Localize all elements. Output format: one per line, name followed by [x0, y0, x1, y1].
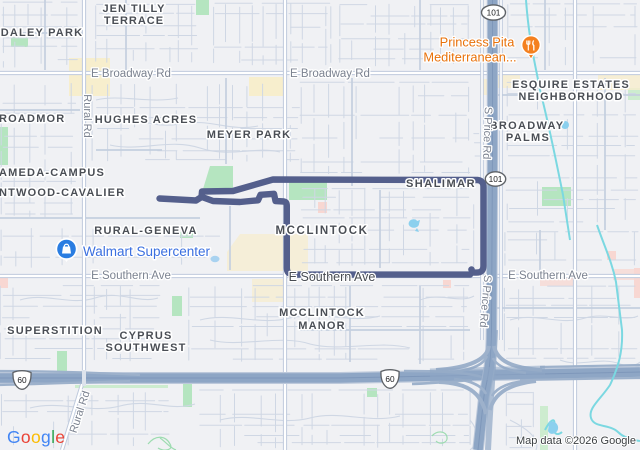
svg-text:TERRACE: TERRACE [104, 15, 164, 27]
svg-text:NTWOOD-CAVALIER: NTWOOD-CAVALIER [0, 187, 125, 199]
svg-text:MCCLINTOCK: MCCLINTOCK [279, 307, 365, 319]
svg-text:SHALIMAR: SHALIMAR [406, 178, 476, 190]
svg-text:CYPRUS: CYPRUS [119, 330, 172, 342]
svg-text:SUPERSTITION: SUPERSTITION [7, 325, 103, 337]
svg-text:E Southern Ave: E Southern Ave [91, 270, 171, 282]
svg-text:AMEDA-CAMPUS: AMEDA-CAMPUS [0, 167, 105, 179]
svg-text:NEIGHBORHOOD: NEIGHBORHOOD [519, 91, 624, 103]
svg-text:SOUTHWEST: SOUTHWEST [105, 342, 186, 354]
svg-text:PALMS: PALMS [506, 132, 550, 144]
svg-text:BROADWAY: BROADWAY [490, 120, 565, 132]
svg-text:DALEY PARK: DALEY PARK [1, 27, 84, 39]
svg-text:Mediterranean...: Mediterranean... [423, 50, 516, 65]
svg-text:Map data ©2026 Google: Map data ©2026 Google [516, 435, 636, 447]
svg-text:MCCLINTOCK: MCCLINTOCK [275, 225, 368, 237]
svg-text:ROADMOR: ROADMOR [0, 113, 65, 125]
svg-text:101: 101 [487, 8, 501, 18]
svg-text:HUGHES ACRES: HUGHES ACRES [95, 114, 198, 126]
svg-text:ESQUIRE ESTATES: ESQUIRE ESTATES [512, 79, 630, 91]
svg-text:RURAL-GENEVA: RURAL-GENEVA [94, 225, 197, 237]
svg-text:Rural Rd: Rural Rd [81, 94, 93, 137]
svg-text:E Broadway Rd: E Broadway Rd [91, 68, 171, 80]
svg-text:60: 60 [17, 375, 27, 385]
svg-text:S Price Rd: S Price Rd [480, 107, 494, 160]
svg-text:E Southern Ave: E Southern Ave [508, 270, 588, 282]
svg-text:Walmart Supercenter: Walmart Supercenter [83, 244, 211, 259]
svg-text:MANOR: MANOR [298, 320, 346, 332]
svg-text:101: 101 [489, 174, 503, 184]
svg-text:60: 60 [385, 374, 395, 384]
svg-text:Princess Pita: Princess Pita [440, 35, 516, 50]
svg-text:E Broadway Rd: E Broadway Rd [290, 68, 370, 80]
svg-text:JEN TILLY: JEN TILLY [103, 3, 166, 15]
svg-text:E Southern Ave: E Southern Ave [289, 270, 376, 284]
svg-text:MEYER PARK: MEYER PARK [207, 129, 292, 141]
svg-text:Google: Google [7, 427, 65, 447]
